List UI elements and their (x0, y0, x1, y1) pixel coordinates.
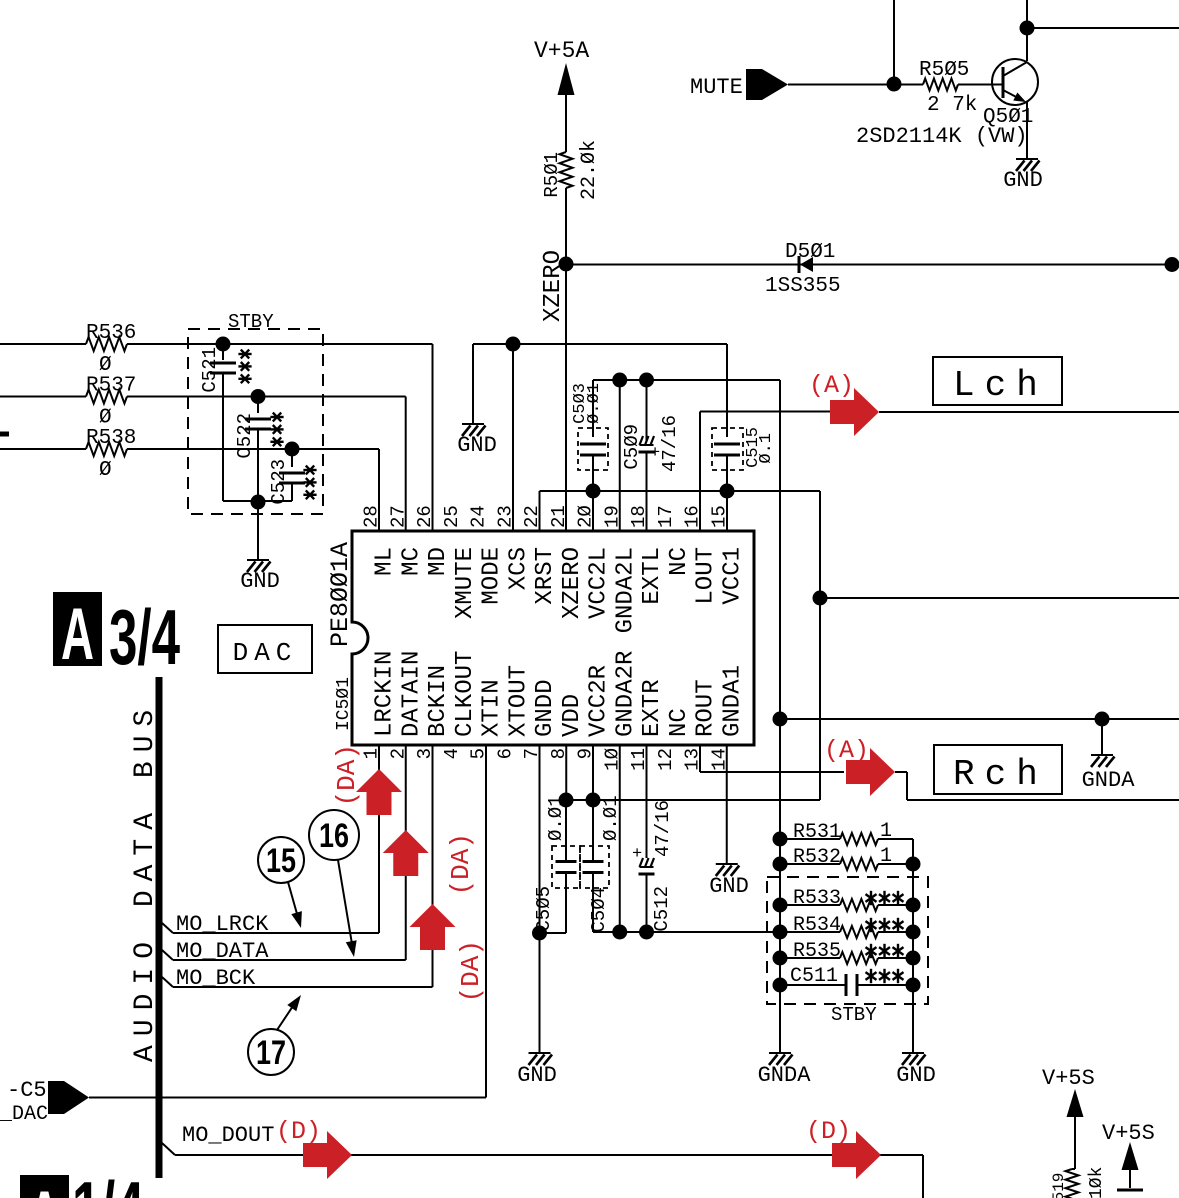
svg-text:GND: GND (1003, 168, 1043, 193)
svg-text:IC5Ø1: IC5Ø1 (334, 677, 354, 731)
svg-text:47/16: 47/16 (659, 415, 681, 472)
svg-text:GNDD: GNDD (532, 679, 559, 737)
svg-text:16: 16 (319, 817, 349, 855)
svg-text:1SS355: 1SS355 (765, 275, 841, 298)
svg-text:(D): (D) (276, 1117, 321, 1146)
svg-text:VCC1: VCC1 (719, 547, 746, 605)
svg-text:Ø.Ø1: Ø.Ø1 (600, 795, 622, 841)
svg-text:LRCKIN: LRCKIN (372, 651, 399, 737)
svg-text:12: 12 (655, 748, 677, 771)
svg-text:GND: GND (457, 433, 497, 458)
svg-text:R5Ø5: R5Ø5 (919, 59, 969, 82)
svg-text:C521: C521 (199, 347, 221, 393)
svg-text:22.Øk: 22.Øk (578, 140, 601, 200)
svg-text:C512: C512 (651, 886, 673, 932)
svg-text:GNDA: GNDA (1082, 768, 1136, 793)
svg-text:PE8ØØ1A: PE8ØØ1A (326, 542, 355, 647)
svg-text:R536: R536 (86, 322, 136, 345)
svg-text:Lch: Lch (953, 365, 1048, 406)
svg-text:NC: NC (666, 708, 693, 737)
svg-text:C5Ø5: C5Ø5 (533, 886, 555, 932)
svg-text:1Øk: 1Øk (1087, 1167, 1107, 1198)
svg-text:MD: MD (425, 547, 452, 576)
svg-text:+: + (632, 845, 642, 864)
svg-text:C5Ø4: C5Ø4 (588, 887, 610, 933)
svg-text:DATAIN: DATAIN (398, 651, 425, 737)
svg-text:NC: NC (666, 547, 693, 576)
svg-text:R537: R537 (86, 375, 136, 398)
svg-text:XTOUT: XTOUT (505, 665, 532, 737)
svg-text:GND: GND (709, 874, 749, 899)
svg-text:C523: C523 (268, 459, 290, 505)
svg-text:2SD2114K (VW): 2SD2114K (VW) (856, 124, 1028, 149)
svg-text:ROUT: ROUT (693, 679, 720, 737)
svg-text:XRST: XRST (532, 547, 559, 605)
svg-text:(DA): (DA) (456, 940, 486, 1002)
svg-text:R538: R538 (86, 427, 136, 450)
svg-text:A: A (28, 1177, 61, 1198)
svg-text:24: 24 (468, 505, 490, 528)
svg-text:R534: R534 (793, 914, 841, 937)
svg-text:XTIN: XTIN (479, 679, 506, 737)
svg-text:V+5S: V+5S (1102, 1121, 1155, 1146)
svg-text:XMUTE: XMUTE (452, 547, 479, 619)
svg-text:VCC2R: VCC2R (586, 665, 613, 737)
svg-text:27: 27 (387, 505, 409, 528)
svg-text:3/4: 3/4 (109, 593, 180, 681)
svg-text:C5Ø9: C5Ø9 (621, 424, 643, 470)
svg-text:MC: MC (398, 547, 425, 576)
svg-text:25: 25 (441, 505, 463, 528)
svg-text:MO_DOUT: MO_DOUT (182, 1123, 274, 1148)
svg-text:A: A (61, 594, 94, 675)
svg-text:CLKOUT: CLKOUT (452, 651, 479, 737)
svg-text:Rch: Rch (953, 754, 1048, 795)
svg-text:1: 1 (880, 845, 892, 868)
svg-text:_DAC: _DAC (0, 1103, 48, 1126)
svg-text:Ø.1: Ø.1 (757, 433, 776, 464)
svg-text:(DA): (DA) (332, 744, 362, 806)
svg-text:MUTE: MUTE (690, 75, 743, 100)
svg-text:R5Ø1: R5Ø1 (541, 152, 563, 198)
svg-text:Ø.Ø1: Ø.Ø1 (545, 795, 567, 841)
svg-text:MO_BCK: MO_BCK (176, 966, 256, 991)
svg-text:21: 21 (548, 505, 570, 528)
svg-text:R519: R519 (1050, 1173, 1068, 1198)
svg-text:4: 4 (441, 748, 463, 759)
svg-text:47/16: 47/16 (652, 800, 674, 857)
svg-text:1: 1 (880, 820, 892, 843)
svg-text:STBY: STBY (228, 311, 274, 333)
svg-text:R533: R533 (793, 887, 841, 910)
svg-text:C511: C511 (790, 965, 838, 988)
svg-text:15: 15 (266, 842, 296, 880)
svg-text:26: 26 (414, 505, 436, 528)
svg-text:EXTR: EXTR (639, 679, 666, 737)
svg-text:V+5S: V+5S (1042, 1066, 1095, 1091)
svg-text:GND: GND (896, 1063, 936, 1088)
svg-text:GNDA1: GNDA1 (719, 665, 746, 737)
svg-text:MODE: MODE (479, 547, 506, 605)
svg-text:6: 6 (494, 748, 516, 759)
svg-text:(A): (A) (809, 371, 854, 400)
svg-text:2 7k: 2 7k (927, 94, 977, 117)
svg-text:LOUT: LOUT (693, 547, 720, 605)
svg-text:GND: GND (517, 1063, 557, 1088)
svg-text:1/4: 1/4 (72, 1165, 144, 1198)
svg-text:BCKIN: BCKIN (425, 665, 452, 737)
svg-text:STBY: STBY (831, 1004, 877, 1026)
svg-text:(DA): (DA) (446, 833, 476, 895)
svg-text:V+5A: V+5A (534, 38, 589, 64)
svg-text:R532: R532 (793, 846, 841, 869)
svg-text:GNDA2R: GNDA2R (612, 651, 639, 737)
svg-text:Ø: Ø (99, 459, 112, 482)
svg-text:MO_LRCK: MO_LRCK (176, 912, 269, 937)
svg-text:R531: R531 (793, 821, 841, 844)
svg-text:VCC2L: VCC2L (586, 547, 613, 619)
svg-text:17: 17 (655, 505, 677, 528)
svg-text:ML: ML (372, 547, 399, 576)
svg-text:GND: GND (240, 569, 280, 594)
svg-text:GNDA2L: GNDA2L (612, 547, 639, 633)
svg-text:DAC: DAC (233, 638, 298, 668)
svg-text:C522: C522 (234, 413, 256, 459)
svg-text:MO_DATA: MO_DATA (176, 939, 269, 964)
svg-text:EXTL: EXTL (639, 547, 666, 605)
svg-text:17: 17 (256, 1034, 286, 1072)
svg-text:XCS: XCS (505, 547, 532, 590)
svg-text:28: 28 (361, 505, 383, 528)
svg-text:Ø.Ø1: Ø.Ø1 (585, 383, 604, 424)
svg-text:VDD: VDD (559, 694, 586, 737)
svg-text:(D): (D) (806, 1117, 851, 1146)
svg-text:-C5: -C5 (7, 1078, 47, 1103)
svg-text:D5Ø1: D5Ø1 (785, 241, 835, 264)
svg-text:R535: R535 (793, 940, 841, 963)
svg-text:XZERO: XZERO (559, 547, 586, 619)
svg-text:GNDA: GNDA (758, 1063, 812, 1088)
